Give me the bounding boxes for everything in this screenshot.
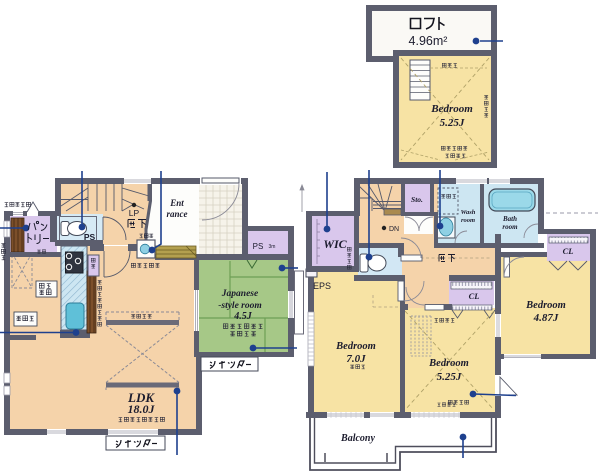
- svg-text:Bath: Bath: [502, 215, 517, 223]
- svg-text:CL: CL: [563, 246, 574, 256]
- svg-text:Bedroom: Bedroom: [430, 103, 473, 115]
- svg-text:Bedroom: Bedroom: [525, 300, 566, 311]
- svg-text:5.25J: 5.25J: [440, 117, 465, 129]
- svg-text:EPS: EPS: [313, 281, 331, 291]
- svg-text:CL: CL: [469, 291, 480, 301]
- svg-text:4.87J: 4.87J: [533, 312, 559, 324]
- svg-text:PS: PS: [253, 242, 264, 251]
- svg-text:Japanese: Japanese: [221, 289, 259, 299]
- svg-text:rance: rance: [167, 209, 188, 219]
- svg-text:4.96m²: 4.96m²: [409, 34, 448, 48]
- svg-text:Sto.: Sto.: [411, 195, 423, 204]
- svg-text:room: room: [502, 223, 518, 231]
- svg-text:Bedroom: Bedroom: [428, 358, 469, 369]
- svg-text:room: room: [461, 217, 475, 224]
- svg-text:Balcony: Balcony: [340, 433, 375, 444]
- svg-text:Wash: Wash: [461, 209, 476, 216]
- svg-text:Bedroom: Bedroom: [335, 341, 376, 352]
- svg-text:-style room: -style room: [218, 301, 262, 311]
- svg-text:18.0J: 18.0J: [128, 402, 156, 416]
- svg-text:PS: PS: [84, 232, 96, 242]
- svg-text:4.5J: 4.5J: [233, 311, 253, 322]
- svg-text:7.0J: 7.0J: [346, 353, 366, 365]
- svg-text:Ent: Ent: [169, 198, 184, 208]
- svg-text:LP: LP: [129, 208, 140, 218]
- svg-text:DN: DN: [389, 226, 399, 233]
- svg-text:5.25J: 5.25J: [437, 371, 462, 383]
- svg-text:3m: 3m: [269, 244, 276, 250]
- svg-text:WIC: WIC: [323, 237, 347, 251]
